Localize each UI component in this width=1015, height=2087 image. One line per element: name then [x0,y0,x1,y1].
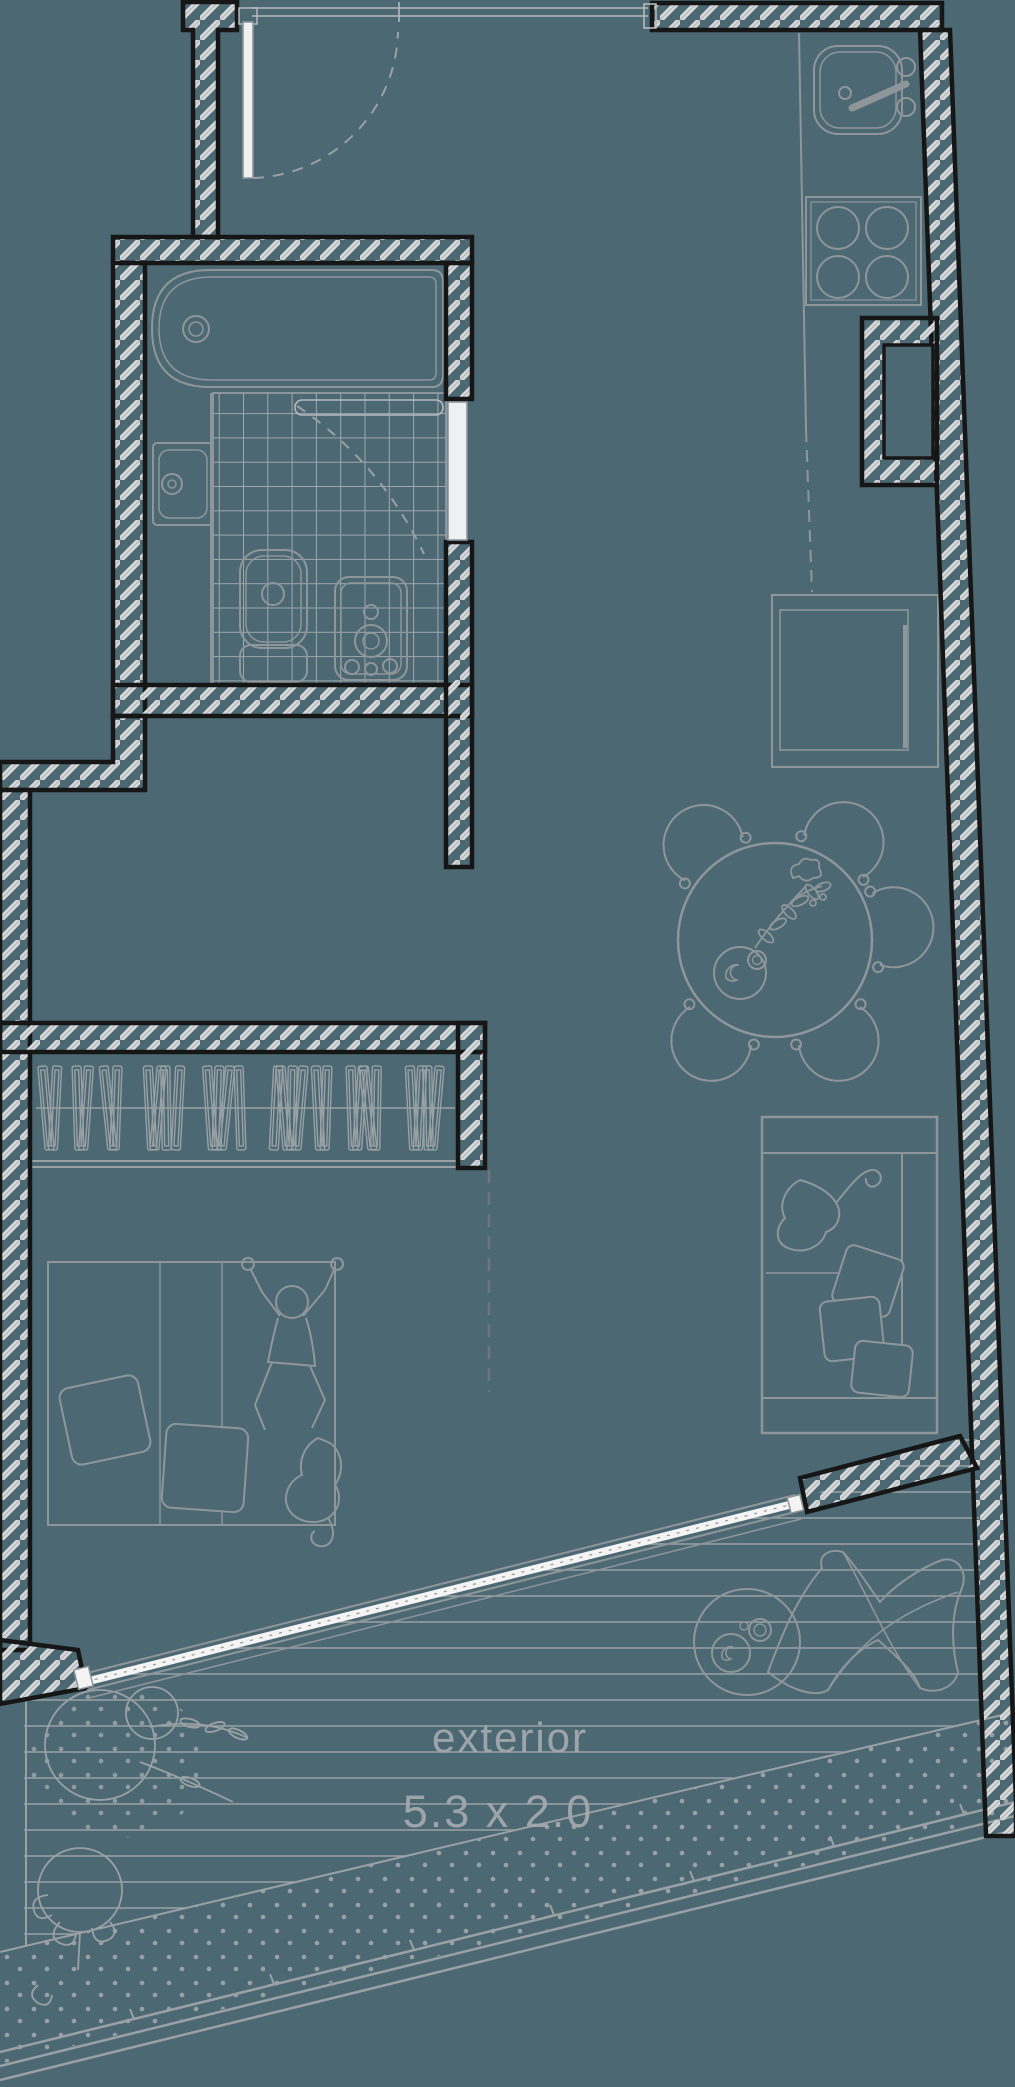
bathroom-door-leaf [448,402,467,540]
entry-door [239,8,398,178]
dining-table [678,843,872,1037]
fridge [772,595,938,767]
bedroom-top-wall [0,1023,485,1052]
entry-door-swing-arc [253,32,398,178]
dining-chair [865,880,938,972]
bathroom-bottom-wall [113,685,472,716]
bathtub [152,270,443,387]
cat-on-bed [286,1438,341,1546]
entry-wall-column [183,2,237,237]
closet-right-wall [458,1023,485,1168]
table-plant-sprig [755,859,832,948]
left-wall-upper [113,263,145,716]
terrace-diagonal-wall [800,1436,977,1512]
bed-pillows [58,1374,249,1513]
right-wall [920,30,1015,1836]
cat-on-sofa [778,1170,881,1250]
left-step-wall [0,716,145,790]
bathroom-top-wall [113,237,472,263]
kitchen-top-wall [652,3,942,30]
left-wall-terrace-stub [0,1640,86,1704]
terrace-dimensions: 5.3 x 2.0 [403,1786,594,1837]
stove-cooktop [806,197,921,305]
table-plate-and-croissant [714,947,766,999]
entry-door-leaf [243,22,253,178]
dining-chair [645,787,752,890]
dining-chair [654,997,761,1097]
kitchen-counter-edge [799,33,812,592]
bathroom-right-wall-lower [446,542,472,867]
terrace-label: exterior [432,1714,588,1761]
walls [0,2,1015,1836]
top-window-band [252,2,656,28]
wardrobe-closet [28,1066,458,1167]
bathroom-sink [153,443,213,525]
sofa-pillows [819,1243,914,1398]
terrace-coffee-table [694,1589,800,1695]
dining-chair [789,997,896,1097]
utility-niche-opening [884,345,933,458]
bathroom-right-wall-upper [446,263,472,399]
dining-chair [794,785,901,887]
kitchen-sink [814,46,915,134]
child-figure-on-bed [242,1258,343,1430]
left-wall-lower [0,790,30,1650]
floor-plan: exterior 5.3 x 2.0 [0,0,1015,2087]
